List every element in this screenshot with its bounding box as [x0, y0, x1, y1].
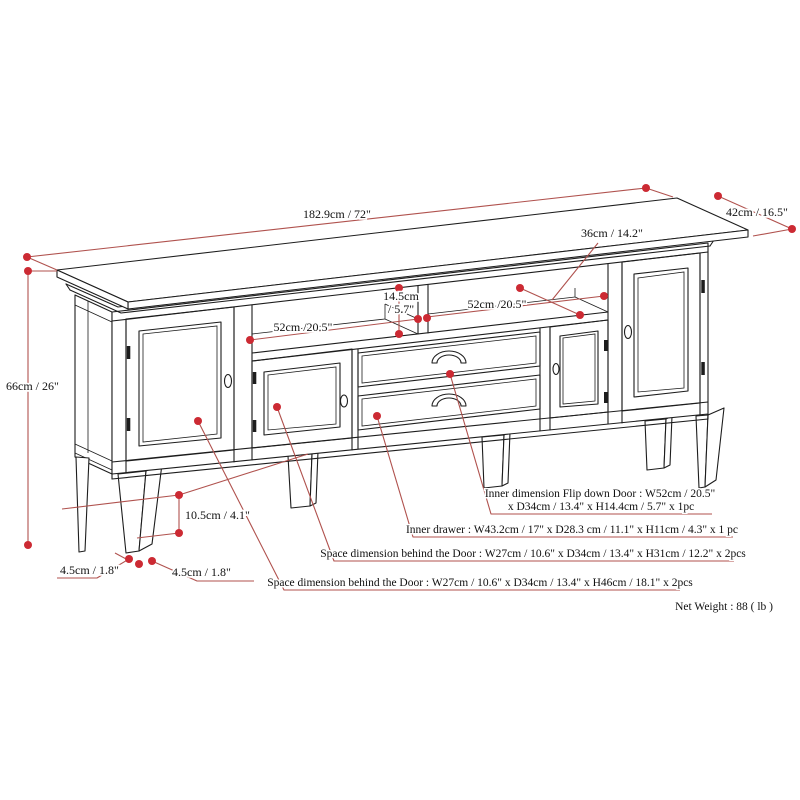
hinge — [604, 340, 608, 351]
flip-down-door-note-line1: Inner dimension Flip down Door : W52cm /… — [485, 488, 715, 500]
shelf-width-right-label: 52cm /20.5" — [468, 297, 527, 311]
hinge — [253, 420, 256, 432]
hinge — [701, 362, 705, 375]
hinge — [127, 418, 131, 431]
foot — [645, 419, 666, 470]
foot-width-label: 4.5cm / 1.8" — [60, 563, 119, 577]
space-behind-door-h46-note: Space dimension behind the Door : W27cm … — [267, 577, 693, 589]
shelf-height-label-in: / 5.7" — [388, 302, 414, 316]
left-side-panel — [75, 295, 112, 474]
top-depth-label: 42cm / 16.5" — [726, 205, 788, 219]
foot-depth-label: 4.5cm / 1.8" — [172, 565, 231, 579]
hinge — [253, 372, 256, 384]
shelf-height-label-cm: 14.5cm — [383, 289, 419, 303]
hinge — [604, 392, 608, 403]
space-behind-door-h31-note: Space dimension behind the Door : W27cm … — [320, 548, 746, 560]
flip-down-door-note-line2: x D34cm / 13.4" x H14.4cm / 5.7" x 1pc — [508, 501, 694, 513]
shelf-width-left-label: 52cm /20.5" — [274, 320, 333, 334]
inner-drawer-note: Inner drawer : W43.2cm / 17" x D28.3 cm … — [406, 524, 738, 536]
back-left-leg — [76, 457, 89, 552]
dim-height — [28, 271, 57, 545]
hinge — [701, 280, 705, 293]
foot — [288, 454, 312, 508]
net-weight-label: Net Weight : 88 ( lb ) — [675, 601, 773, 613]
top-width-label: 182.9cm / 72" — [303, 207, 371, 221]
base-clearance-label: 10.5cm / 4.1" — [185, 508, 250, 522]
shelf-depth-label: 36cm / 14.2" — [581, 226, 643, 240]
hinge — [127, 346, 131, 359]
furniture-dimension-diagram: 182.9cm / 72" 42cm / 16.5" 66cm / 26" 36… — [0, 0, 800, 800]
height-label: 66cm / 26" — [6, 379, 59, 393]
note-labels: Inner dimension Flip down Door : W52cm /… — [267, 488, 773, 613]
tv-stand-schematic: 182.9cm / 72" 42cm / 16.5" 66cm / 26" 36… — [0, 0, 800, 800]
foot — [482, 435, 504, 488]
